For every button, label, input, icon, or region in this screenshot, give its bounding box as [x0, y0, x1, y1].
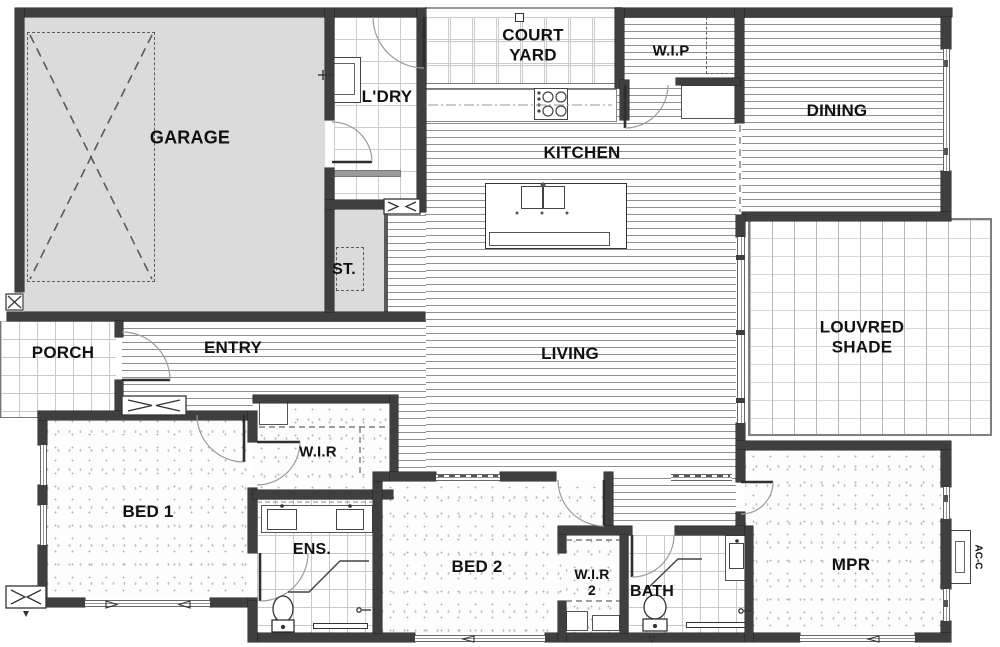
room-label-ldry: L'DRY — [362, 87, 413, 107]
garage-internal-door — [384, 199, 420, 214]
room-label-kitchen: KITCHEN — [544, 143, 621, 163]
room-label-dining: DINING — [807, 101, 868, 121]
garage-x-mark — [30, 35, 152, 279]
room-label-bath: BATH — [630, 583, 674, 601]
corner-cupboard — [6, 586, 46, 617]
ensuite-shower-outline — [288, 561, 369, 592]
island-details — [516, 183, 568, 214]
room-label-mpr: MPR — [832, 555, 870, 575]
room-label-ens: ENS. — [293, 541, 331, 559]
label-ac-condenser: AC-C — [973, 545, 984, 570]
room-label-courtyard: COURT YARD — [502, 25, 563, 64]
room-label-wir1: W.I.R — [299, 443, 337, 460]
laundry-tap — [318, 70, 334, 80]
room-label-bed2: BED 2 — [451, 557, 502, 577]
room-label-louvred-shade: LOUVRED SHADE — [793, 317, 931, 356]
window-sash-ticks — [944, 60, 948, 607]
vanity-taps — [280, 504, 739, 543]
ensuite-toilet — [272, 596, 294, 632]
garage-pier — [6, 294, 23, 310]
room-label-porch: PORCH — [32, 343, 94, 363]
window-arrows — [106, 601, 879, 642]
floor-plan: GARAGE L'DRY COURT YARD W.I.P DINING KIT… — [0, 0, 1000, 647]
room-label-wir2: W.I.R 2 — [574, 566, 609, 598]
room-label-garage: GARAGE — [150, 128, 230, 149]
room-label-st: ST. — [332, 261, 356, 279]
stacker-mullions — [736, 255, 745, 403]
room-label-bed1: BED 1 — [122, 502, 173, 522]
room-label-living: LIVING — [541, 344, 599, 364]
cooktop-burners — [538, 92, 566, 116]
room-label-entry: ENTRY — [204, 338, 262, 358]
entry-linen-cupboard — [122, 396, 186, 415]
shower-taps — [357, 608, 752, 613]
room-label-wip: W.I.P — [653, 42, 690, 59]
